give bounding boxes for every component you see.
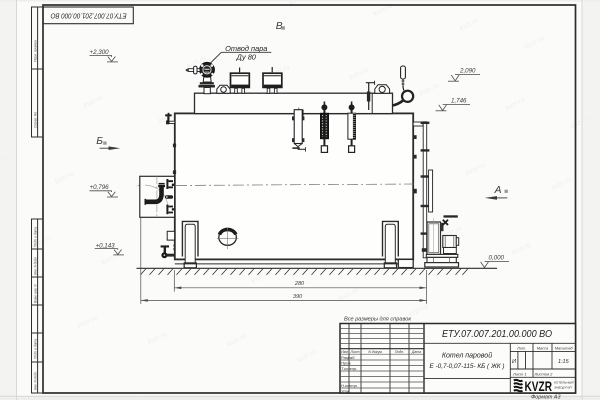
svg-text:Лист: Лист — [349, 350, 359, 354]
svg-text:Дата: Дата — [411, 350, 421, 354]
svg-text:N докум.: N докум. — [368, 350, 382, 354]
svg-text:Отвод пара: Отвод пара — [225, 44, 267, 53]
svg-text:KVZR: KVZR — [525, 378, 553, 394]
svg-text:Инв. N дубл.: Инв. N дубл. — [33, 256, 37, 275]
svg-text:390: 390 — [293, 294, 303, 300]
svg-text:Котел паровой: Котел паровой — [442, 352, 492, 360]
svg-text:Утв.: Утв. — [341, 388, 350, 393]
svg-text:Е -0,7-0,07-115- КБ ( ЖК ): Е -0,7-0,07-115- КБ ( ЖК ) — [430, 363, 505, 370]
svg-text:2,090: 2,090 — [459, 68, 476, 75]
svg-text:Масса: Масса — [537, 346, 548, 350]
svg-text:Инв. N подл.: Инв. N подл. — [33, 371, 37, 390]
svg-text:ЕТУ.07.007.201.00.000 ВО: ЕТУ.07.007.201.00.000 ВО — [442, 329, 552, 340]
svg-text:Ду 80: Ду 80 — [236, 53, 257, 62]
svg-text:Перв. примен.: Перв. примен. — [33, 39, 37, 62]
svg-text:Лист 1: Лист 1 — [512, 371, 527, 376]
svg-text:Лит.: Лит. — [516, 346, 526, 350]
svg-text:Т.контр.: Т.контр. — [341, 366, 357, 371]
svg-text:+0,796: +0,796 — [90, 184, 110, 191]
svg-text:Изм: Изм — [341, 350, 348, 354]
svg-text:Справ. No: Справ. No — [33, 112, 37, 128]
svg-text:Масштаб: Масштаб — [555, 346, 574, 350]
svg-text:А: А — [494, 185, 502, 196]
svg-text:ЕТУ.07.007.201.00.000 ВО: ЕТУ.07.007.201.00.000 ВО — [50, 11, 126, 20]
svg-text:Подп. и дата: Подп. и дата — [33, 227, 37, 247]
svg-text:Листов 2: Листов 2 — [534, 371, 554, 376]
svg-text:Разраб.: Разраб. — [341, 355, 355, 360]
svg-text:280: 280 — [294, 281, 305, 287]
svg-text:Пров.: Пров. — [341, 361, 352, 366]
svg-text:Б: Б — [96, 136, 103, 147]
svg-text:0,000: 0,000 — [489, 255, 505, 262]
svg-text:Подп. и дата: Подп. и дата — [33, 339, 37, 359]
svg-text:Взам. инв. N: Взам. инв. N — [33, 284, 37, 303]
svg-text:Подп.: Подп. — [395, 350, 404, 354]
svg-text:ЗАВОД РЭП: ЗАВОД РЭП — [554, 386, 573, 390]
svg-text:Формат А3: Формат А3 — [531, 395, 561, 400]
svg-text:1,746: 1,746 — [451, 98, 467, 105]
svg-text:И: И — [512, 359, 516, 365]
svg-text:Все размеры для справок: Все размеры для справок — [344, 317, 411, 323]
svg-text:+2,300: +2,300 — [90, 49, 110, 56]
svg-text:Н.контр.: Н.контр. — [341, 383, 358, 388]
svg-text:1:15: 1:15 — [558, 359, 570, 365]
svg-text:КОТЕЛЬНЫЙ: КОТЕЛЬНЫЙ — [554, 381, 574, 385]
